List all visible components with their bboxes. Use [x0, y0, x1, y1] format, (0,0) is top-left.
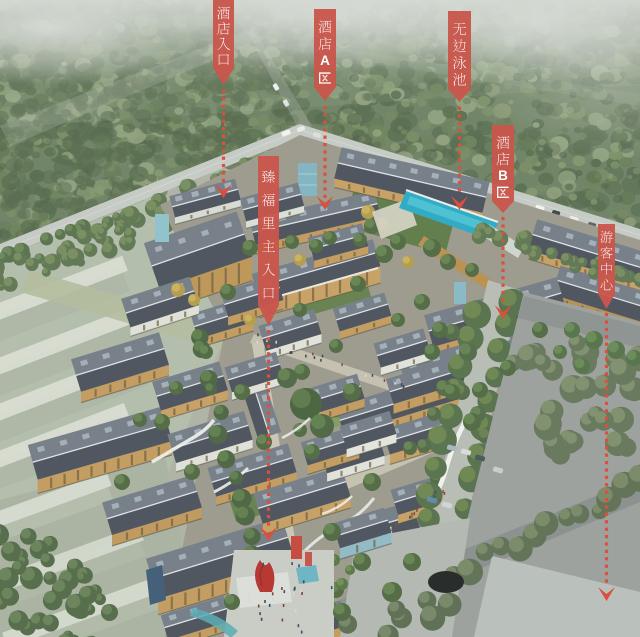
svg-text:A: A	[320, 53, 330, 68]
svg-text:B: B	[498, 168, 508, 183]
